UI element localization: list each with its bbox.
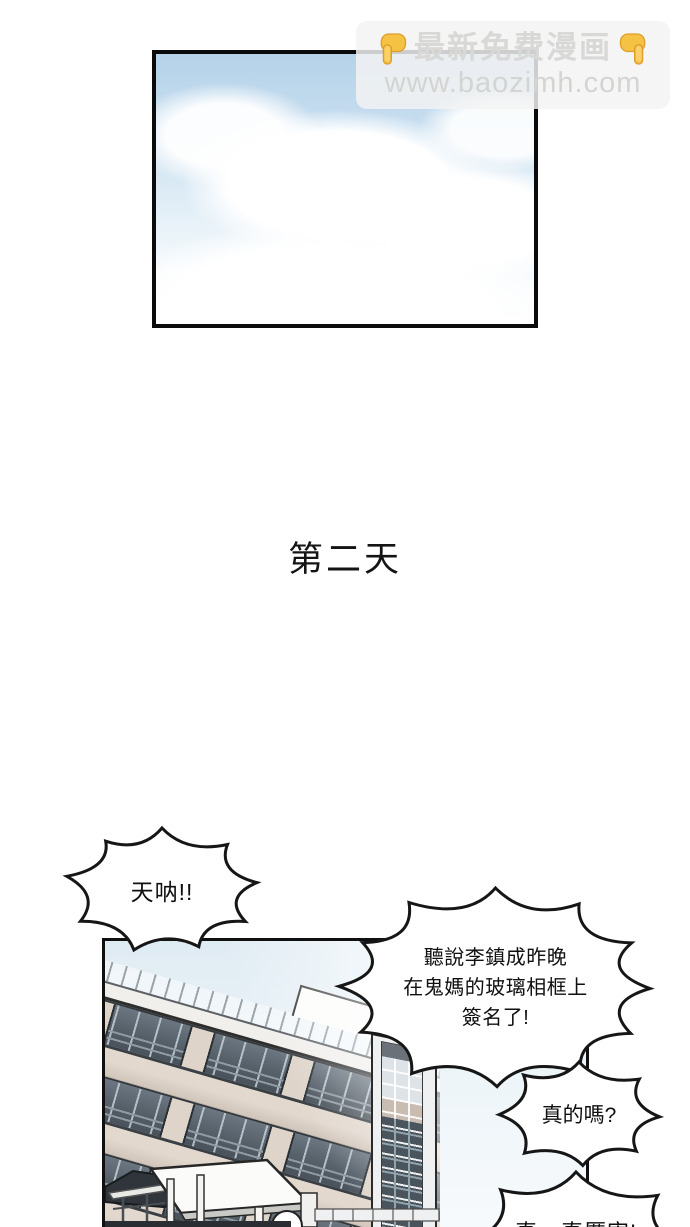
bubble-text-line1: 聽說李鎮成昨晚 — [424, 943, 568, 973]
speech-bubble-exclaim: 天呐!! — [62, 824, 262, 956]
bubble-text: 真的嗎? — [542, 1099, 617, 1129]
chapter-title: 第二天 — [0, 531, 690, 582]
watermark-text: 最新免费漫画 — [414, 31, 612, 66]
watermark-url[interactable]: www.baozimh.com — [385, 67, 642, 99]
bubble-text: 天呐!! — [131, 873, 194, 907]
pointing-down-hand-icon — [378, 31, 408, 67]
bubble-text: 真，真厲害! — [515, 1215, 637, 1227]
comic-page: { "watermark": { "line1": "最新免费漫画", "lin… — [0, 0, 690, 1227]
bubble-text-line2: 在鬼媽的玻璃相框上 — [403, 973, 588, 1003]
pointing-down-hand-icon — [618, 31, 648, 67]
watermark-banner[interactable]: 最新免费漫画 www.baozimh.com — [356, 21, 670, 109]
speech-bubble-really: 真的嗎? — [494, 1058, 664, 1170]
speech-bubble-partial: 真，真厲害! — [462, 1168, 690, 1227]
watermark-line1-row: 最新免费漫画 — [378, 31, 648, 67]
bubble-text-line3: 簽名了! — [462, 1003, 530, 1033]
